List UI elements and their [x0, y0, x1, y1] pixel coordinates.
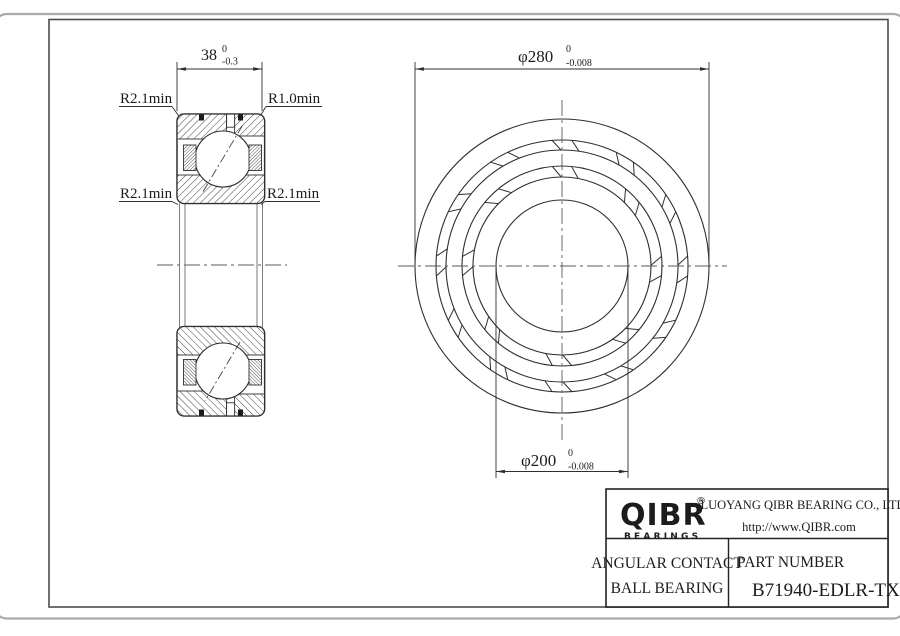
dim-38-tol-upper: 0: [222, 44, 227, 55]
dim-38-value: 38: [201, 47, 217, 64]
radius-label-mid-left: R2.1min: [120, 186, 173, 202]
dim-200-value: φ200: [521, 451, 556, 470]
radius-label-top-right: R1.0min: [268, 91, 321, 107]
dim-280-value: φ280: [518, 47, 553, 66]
part-number-value: B71940-EDLR-TX-P2: [752, 580, 900, 601]
upper-half-section: [176, 112, 266, 204]
company-name: LUOYANG QIBR BEARING CO., LTD: [700, 498, 900, 512]
dim-200-tol-upper: 0: [568, 448, 573, 459]
dim-280-tol-upper: 0: [566, 44, 571, 55]
dim-200-tol-lower: -0.008: [568, 462, 594, 473]
part-number-label: PART NUMBER: [737, 554, 845, 571]
logo-text: QIBR: [620, 498, 707, 533]
title-block: QIBR ® BEARINGS LUOYANG QIBR BEARING CO.…: [591, 489, 900, 607]
logo-subtitle: BEARINGS: [624, 532, 701, 542]
product-type-line2: BALL BEARING: [611, 580, 724, 597]
dim-280-tol-lower: -0.008: [566, 58, 592, 69]
radius-label-mid-right: R2.1min: [267, 186, 320, 202]
radius-label-top-left: R2.1min: [120, 91, 173, 107]
logo: QIBR ® BEARINGS: [620, 496, 707, 542]
lower-half-section: [176, 326, 266, 418]
technical-drawing: 38 0 -0.3 R2.1min R1.0min R2.1min R2.1mi…: [0, 0, 900, 636]
drawing-sheet: 38 0 -0.3 R2.1min R1.0min R2.1min R2.1mi…: [0, 0, 900, 636]
company-website: http://www.QIBR.com: [742, 520, 856, 534]
product-type-line1: ANGULAR CONTACT: [591, 555, 743, 572]
dim-38-tol-lower: -0.3: [222, 57, 238, 68]
